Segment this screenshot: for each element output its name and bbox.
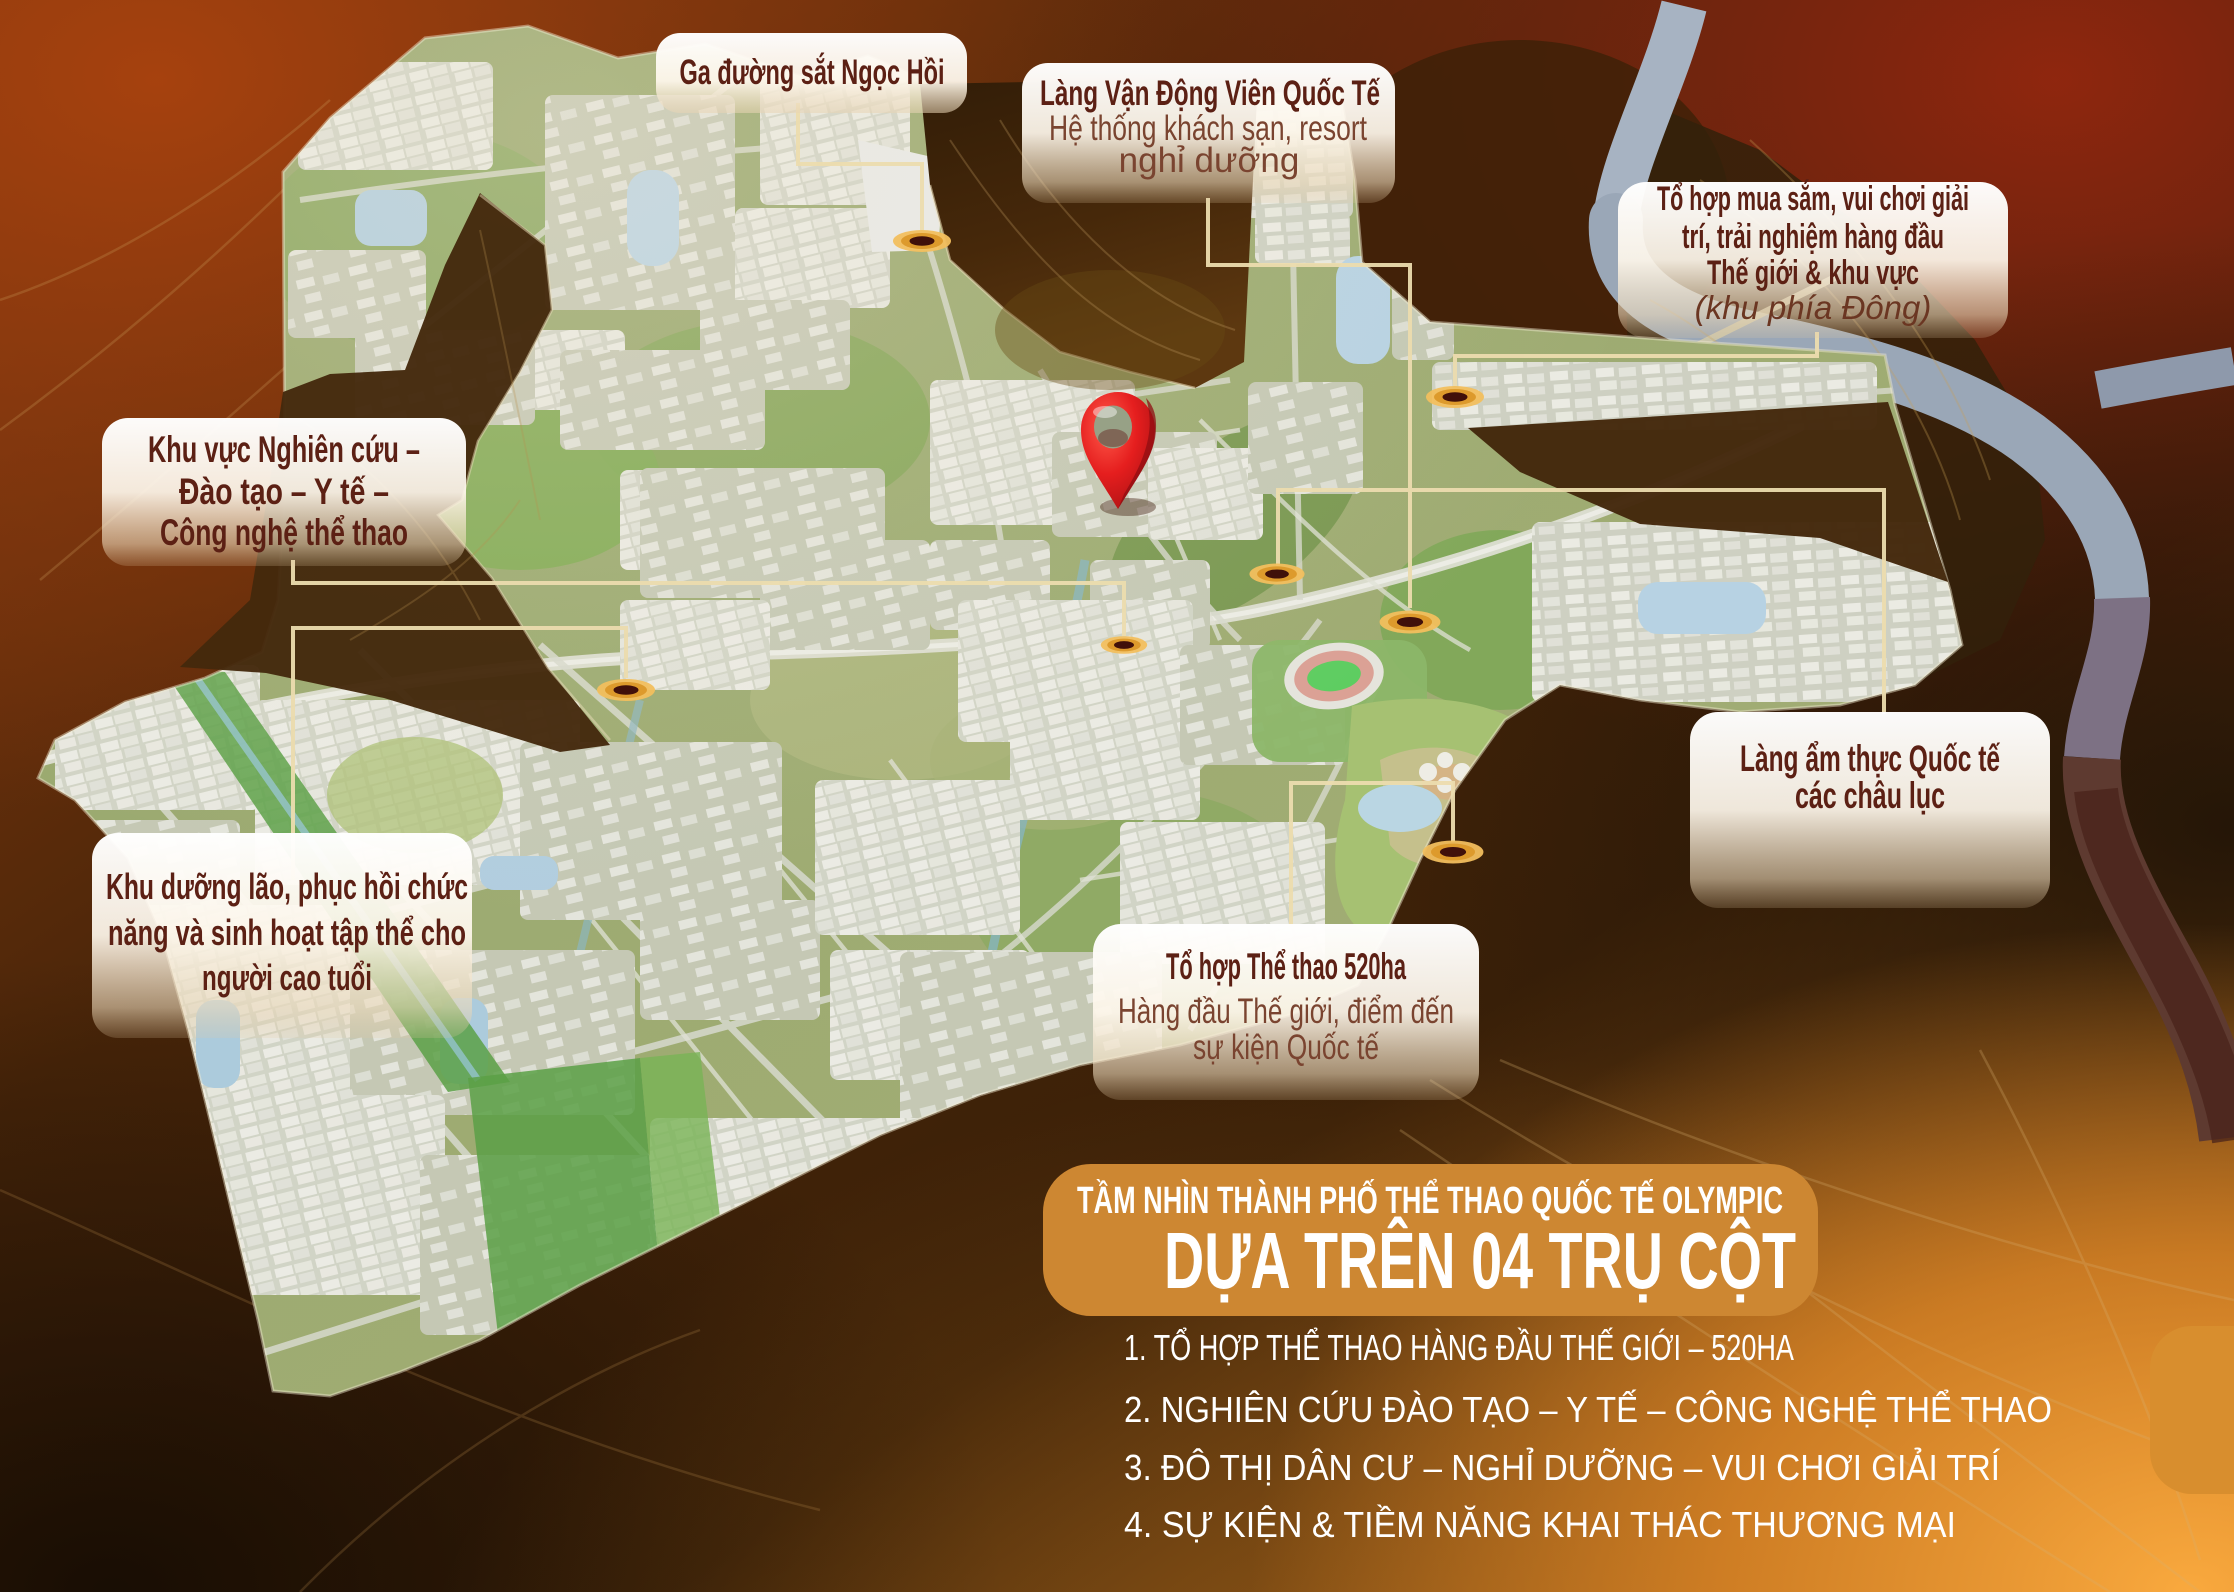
svg-text:các châu lục: các châu lục — [1795, 775, 1945, 816]
svg-text:Tổ hợp Thể thao 520ha: Tổ hợp Thể thao 520ha — [1166, 946, 1406, 987]
svg-text:Thế giới & khu vực: Thế giới & khu vực — [1707, 254, 1919, 292]
svg-text:2. NGHIÊN CỨU ĐÀO TẠO – Y TẾ –: 2. NGHIÊN CỨU ĐÀO TẠO – Y TẾ – CÔNG NGHỆ… — [1124, 1388, 2052, 1430]
svg-text:sự kiện Quốc tế: sự kiện Quốc tế — [1193, 1028, 1379, 1067]
svg-text:Làng ẩm thực Quốc tế: Làng ẩm thực Quốc tế — [1740, 738, 2000, 779]
svg-text:4. SỰ KIỆN & TIỀM NĂNG KHAI TH: 4. SỰ KIỆN & TIỀM NĂNG KHAI THÁC THƯƠNG … — [1124, 1504, 1956, 1545]
svg-text:nghỉ dưỡng: nghỉ dưỡng — [1119, 141, 1300, 180]
svg-text:(khu phía Đông): (khu phía Đông) — [1695, 289, 1932, 326]
svg-text:Làng Vận Động Viên Quốc Tế: Làng Vận Động Viên Quốc Tế — [1040, 74, 1380, 113]
svg-text:1. TỔ HỢP THỂ THAO HÀNG ĐẦU TH: 1. TỔ HỢP THỂ THAO HÀNG ĐẦU THẾ GIỚI – 5… — [1124, 1325, 1794, 1368]
svg-text:người cao tuổi: người cao tuổi — [202, 957, 372, 998]
svg-text:3. ĐÔ THỊ DÂN CƯ – NGHỈ DƯỠNG: 3. ĐÔ THỊ DÂN CƯ – NGHỈ DƯỠNG – VUI CHƠI… — [1124, 1447, 2000, 1488]
svg-text:DỰA TRÊN 04 TRỤ CỘT: DỰA TRÊN 04 TRỤ CỘT — [1164, 1216, 1796, 1305]
svg-text:trí, trải nghiệm hàng đầu: trí, trải nghiệm hàng đầu — [1682, 218, 1944, 256]
svg-text:Tổ hợp mua sắm, vui chơi giải: Tổ hợp mua sắm, vui chơi giải — [1657, 180, 1969, 218]
svg-text:năng và sinh hoạt tập thể cho: năng và sinh hoạt tập thể cho — [108, 912, 466, 953]
svg-text:Khu vực Nghiên cứu –: Khu vực Nghiên cứu – — [148, 429, 420, 470]
svg-text:Hàng đầu Thế giới, điểm đến: Hàng đầu Thế giới, điểm đến — [1118, 992, 1454, 1031]
svg-text:Công nghệ thể thao: Công nghệ thể thao — [160, 512, 408, 553]
svg-text:Khu dưỡng lão, phục hồi chức: Khu dưỡng lão, phục hồi chức — [106, 866, 468, 907]
svg-text:Đào tạo – Y tế –: Đào tạo – Y tế – — [179, 471, 389, 512]
svg-text:Ga đường sắt Ngọc Hồi: Ga đường sắt Ngọc Hồi — [680, 52, 945, 92]
